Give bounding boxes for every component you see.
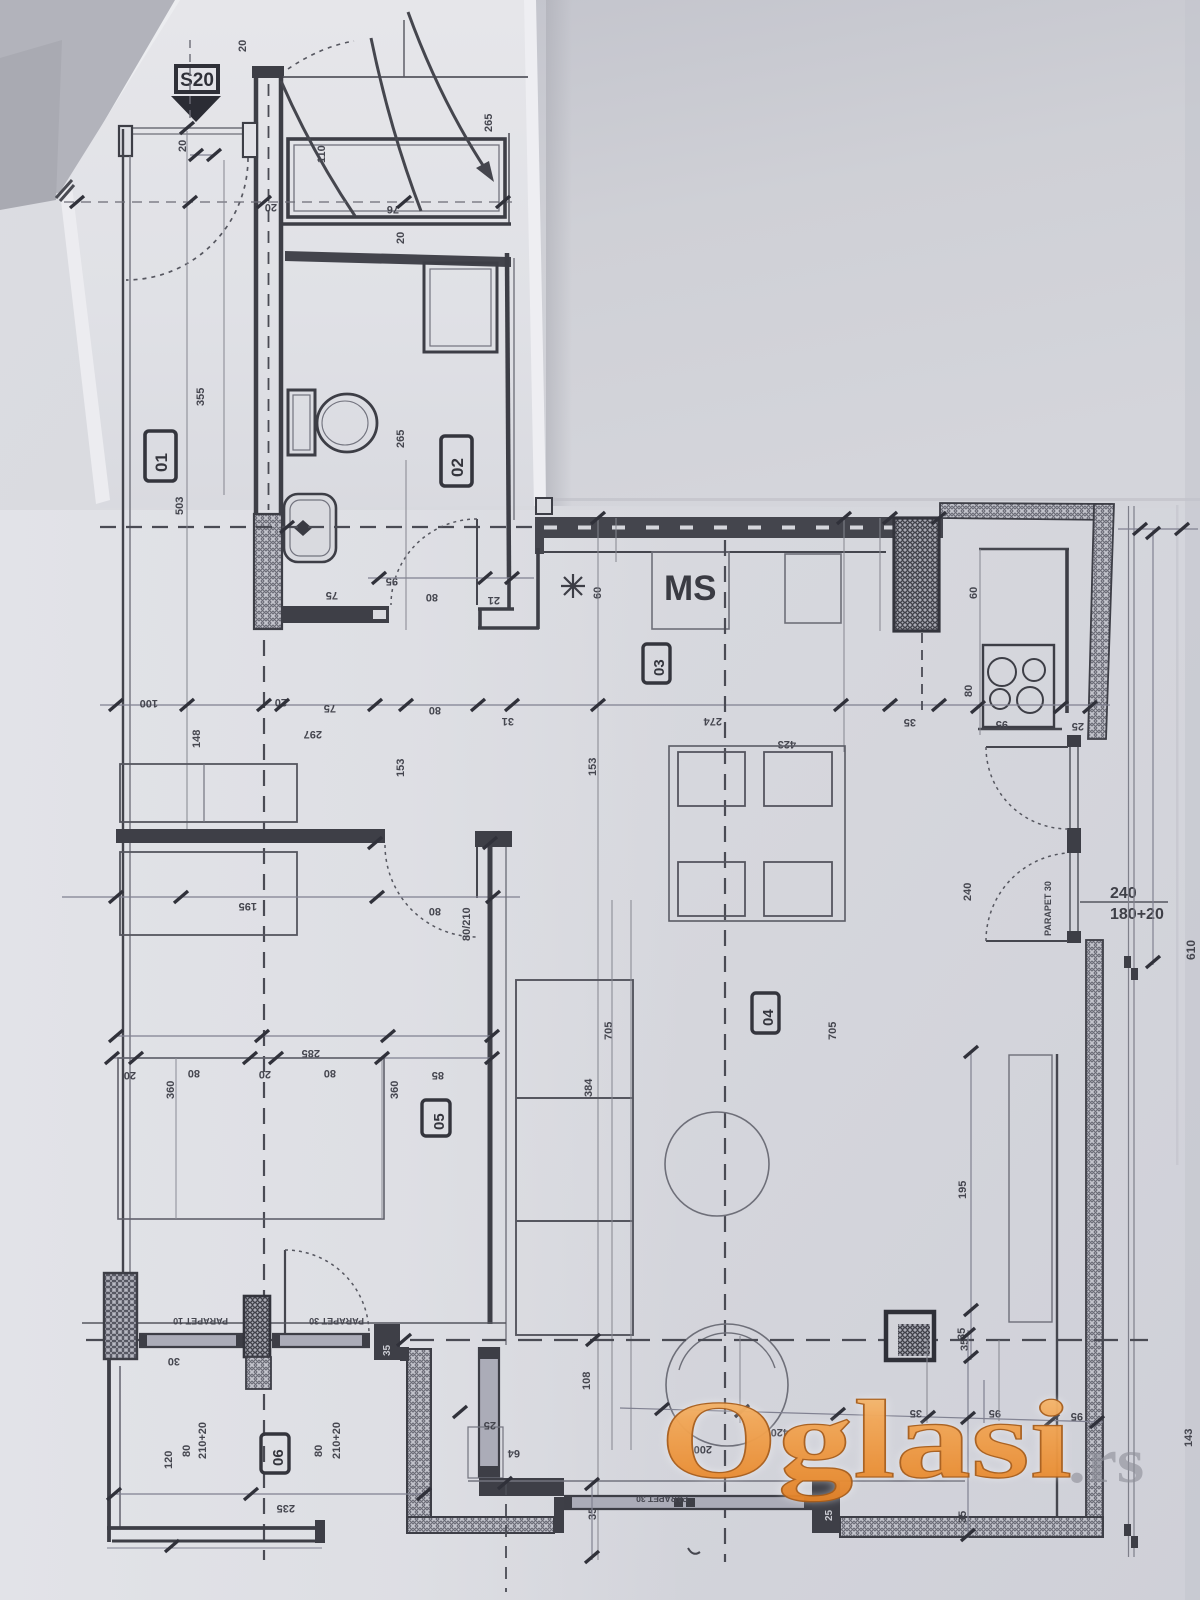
svg-text:75: 75 [326,589,338,601]
svg-text:25: 25 [484,1419,496,1431]
svg-text:80: 80 [188,1067,200,1079]
svg-text:03: 03 [651,659,668,676]
svg-text:705: 705 [827,1022,839,1040]
svg-text:360: 360 [165,1081,177,1099]
svg-text:05: 05 [431,1113,448,1130]
svg-text:95: 95 [386,575,398,587]
svg-text:80: 80 [426,591,438,603]
svg-text:100: 100 [140,697,158,709]
svg-text:60: 60 [968,587,980,599]
svg-text:20: 20 [265,201,277,213]
svg-text:120: 120 [163,1451,175,1469]
svg-text:PARAPET 30: PARAPET 30 [309,1316,364,1326]
svg-text:80: 80 [429,905,441,917]
svg-text:384: 384 [583,1078,595,1097]
svg-text:64: 64 [507,1447,520,1459]
svg-text:195: 195 [957,1181,969,1199]
svg-text:274: 274 [703,715,722,727]
svg-text:297: 297 [304,728,322,740]
svg-text:95: 95 [996,718,1008,730]
svg-text:143: 143 [1183,1429,1195,1447]
svg-text:285: 285 [302,1047,320,1059]
svg-text:705: 705 [603,1022,615,1040]
svg-text:240: 240 [1110,885,1137,902]
svg-text:503: 503 [174,497,186,515]
svg-text:35: 35 [904,716,916,728]
svg-text:20: 20 [124,1069,136,1081]
svg-text:75: 75 [324,702,336,714]
svg-text:360: 360 [389,1081,401,1099]
svg-text:06: 06 [270,1449,287,1466]
svg-text:153: 153 [395,759,407,777]
svg-text:355: 355 [195,388,207,406]
svg-text:85: 85 [432,1069,444,1081]
svg-text:610: 610 [1184,940,1198,960]
svg-text:80: 80 [324,1067,336,1079]
svg-text:80: 80 [313,1445,325,1457]
svg-text:80: 80 [181,1445,193,1457]
svg-text:95: 95 [1071,1410,1083,1422]
svg-text:PARAPET 30: PARAPET 30 [1043,881,1053,936]
svg-text:02: 02 [448,458,467,477]
svg-text:.rs: .rs [1068,1425,1144,1496]
svg-text:180+20: 180+20 [1110,906,1164,923]
svg-text:35: 35 [957,1511,969,1523]
svg-text:20: 20 [395,232,407,244]
svg-text:265: 265 [483,114,495,132]
svg-text:25: 25 [1072,720,1084,732]
svg-text:423: 423 [778,738,796,750]
svg-text:210+20: 210+20 [197,1422,209,1459]
svg-text:80/210: 80/210 [461,907,473,941]
svg-text:21: 21 [488,594,500,606]
svg-text:110: 110 [316,145,328,163]
svg-text:80: 80 [963,685,975,697]
svg-text:35: 35 [382,1344,393,1356]
svg-text:108: 108 [581,1372,593,1390]
svg-text:20: 20 [259,1068,271,1080]
svg-text:20: 20 [237,40,249,52]
svg-text:148: 148 [191,730,203,748]
svg-text:MS: MS [664,569,717,608]
svg-text:153: 153 [587,758,599,776]
svg-text:265: 265 [395,430,407,448]
svg-text:04: 04 [760,1009,777,1026]
svg-text:PARAPET 10: PARAPET 10 [173,1316,228,1326]
svg-text:210+20: 210+20 [331,1422,343,1459]
svg-text:35: 35 [959,1339,971,1351]
svg-text:30: 30 [168,1355,180,1367]
svg-text:25: 25 [824,1509,835,1521]
svg-text:31: 31 [502,715,514,727]
svg-text:76: 76 [387,203,399,215]
svg-text:01: 01 [152,453,171,472]
svg-text:S20: S20 [180,70,214,91]
svg-text:235: 235 [277,1502,295,1514]
svg-text:Oglasi: Oglasi [660,1377,1072,1502]
svg-text:80: 80 [429,704,441,716]
svg-text:195: 195 [239,900,257,912]
svg-text:240: 240 [962,883,974,901]
